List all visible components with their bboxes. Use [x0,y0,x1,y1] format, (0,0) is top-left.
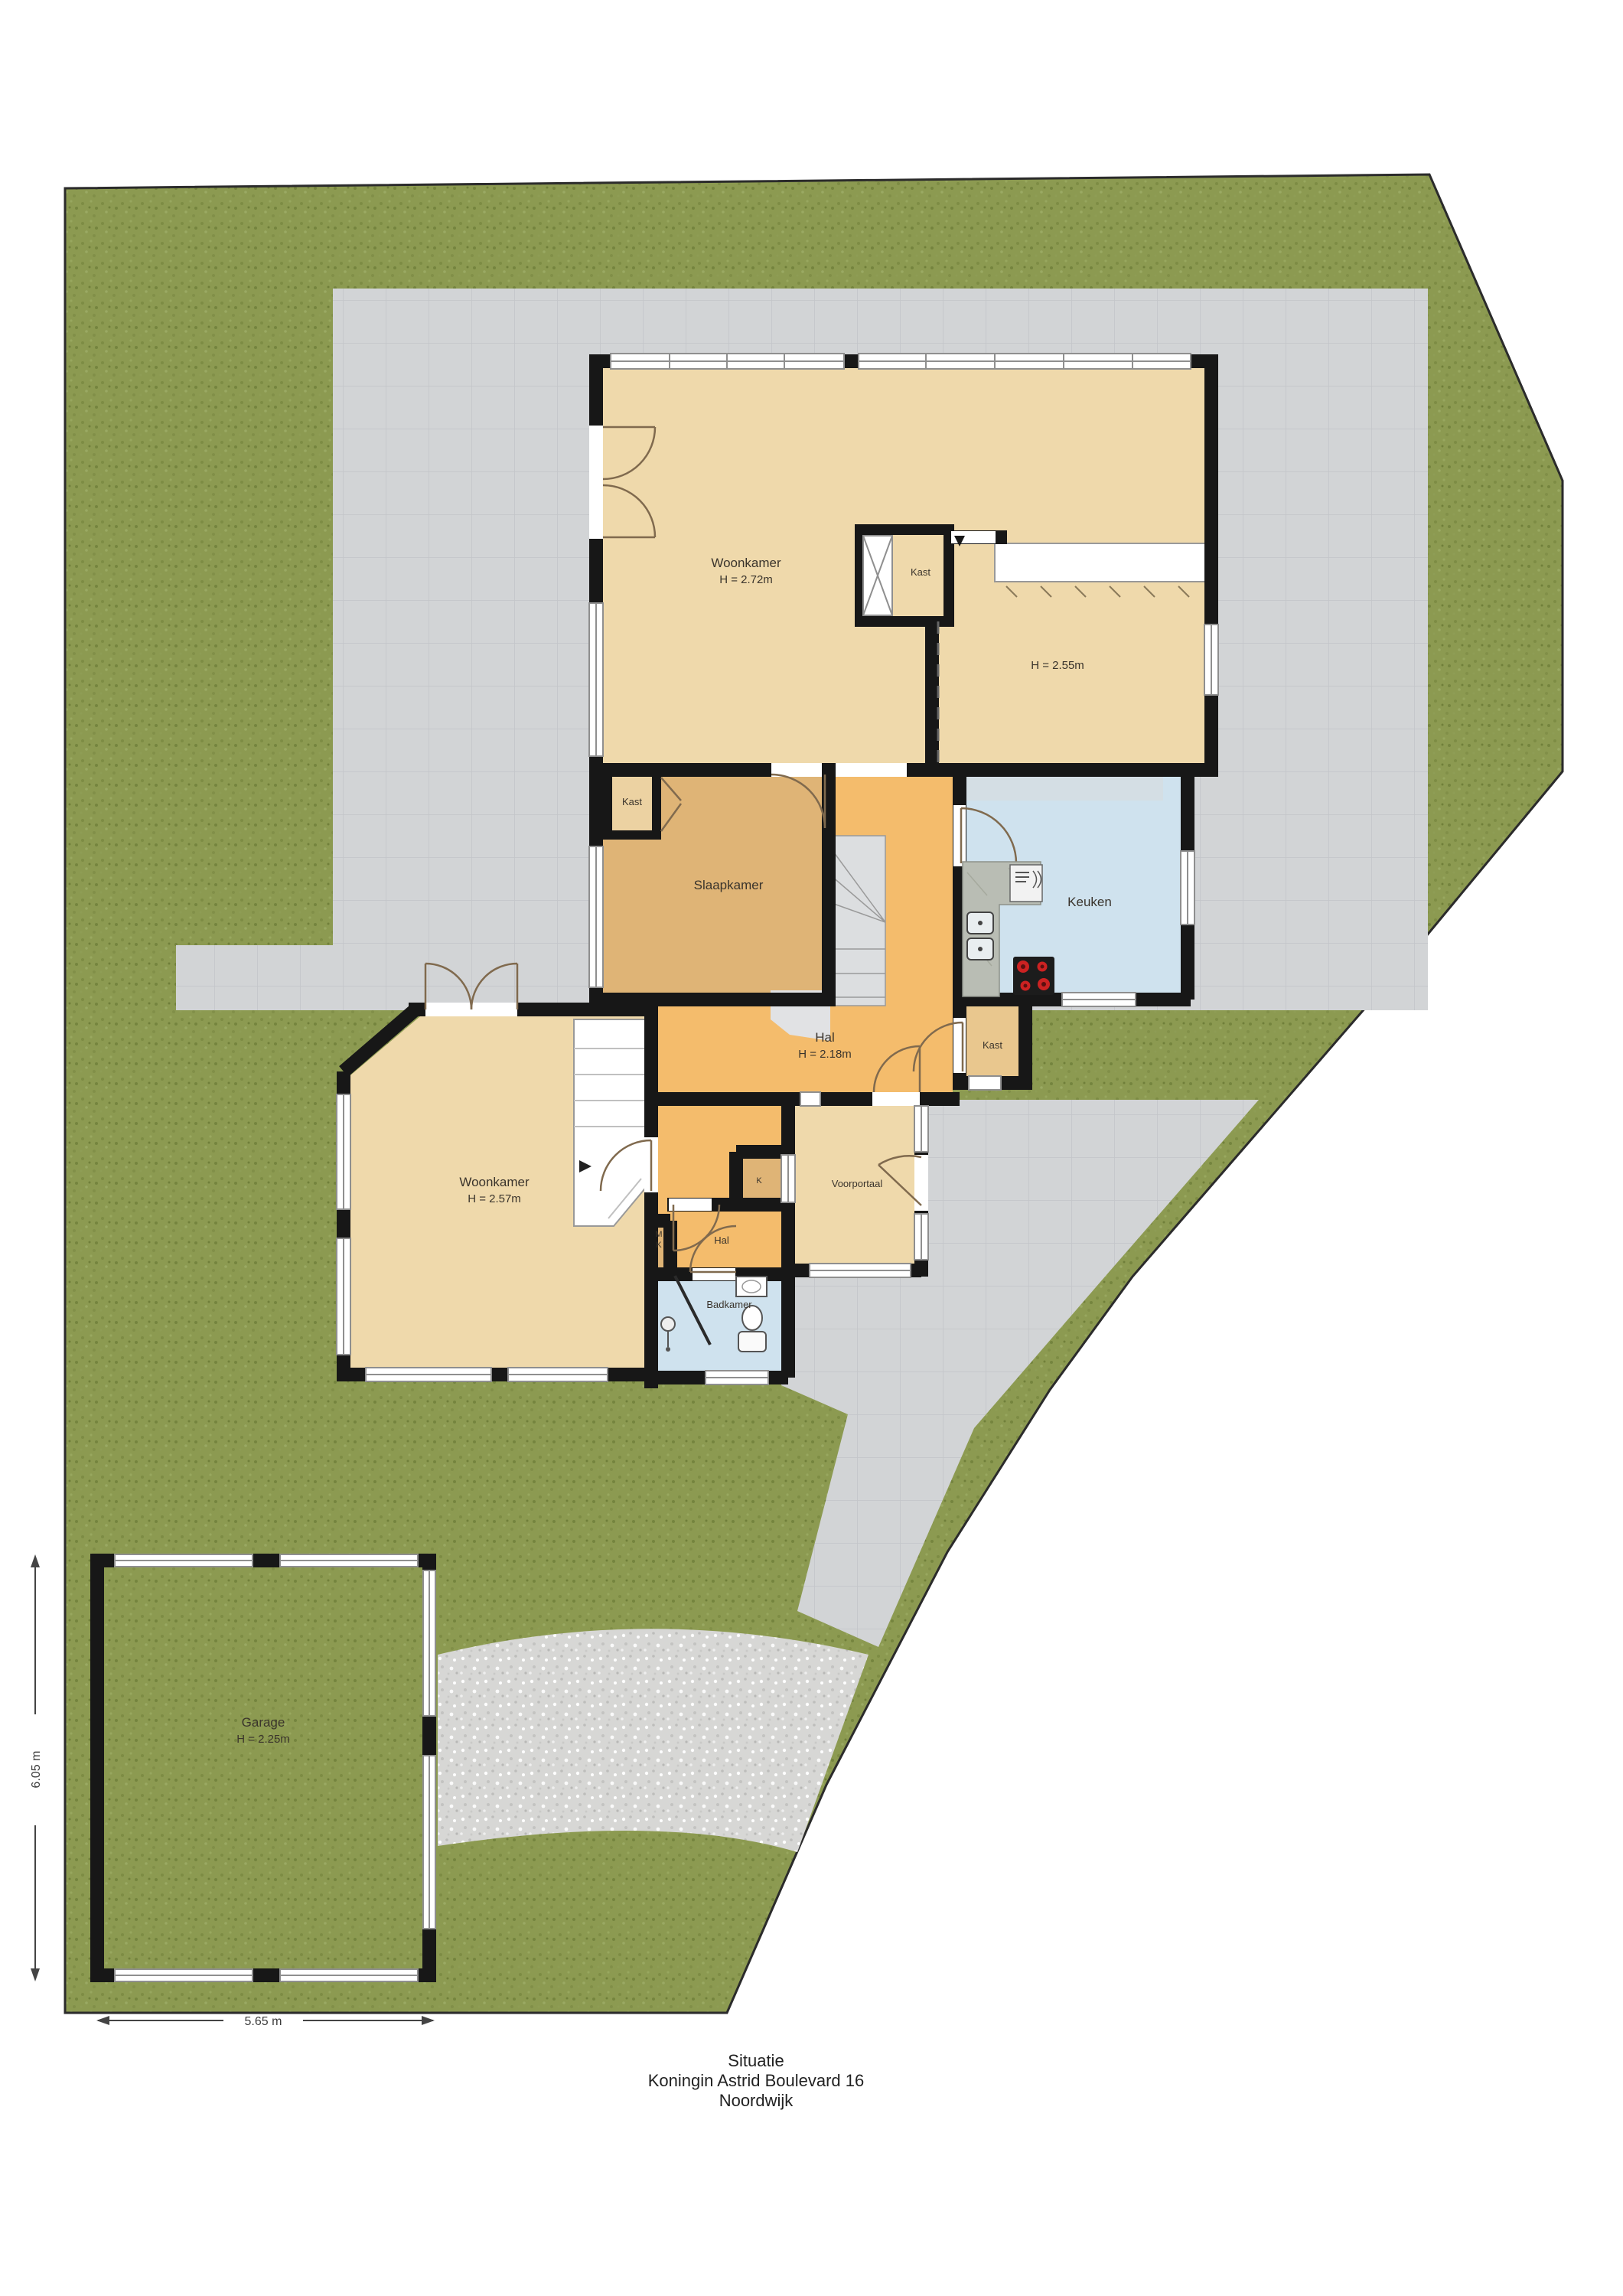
k-closet-label: K [756,1176,762,1186]
meterkast-m-label: M [655,1230,662,1239]
hal-beneden-label: Hal [714,1234,729,1246]
caption-line3: Noordwijk [719,2091,794,2110]
caption-line1: Situatie [728,2051,784,2070]
arrow-up-icon [31,1554,40,1567]
garage-height: H = 2.25m [236,1733,290,1746]
hal-height: H = 2.18m [798,1048,852,1061]
arrow-down-icon [31,1968,40,1981]
situatie-floor-plan-page: { "title": { "line1": "Situatie", "line2… [0,0,1623,2296]
woonkamer-boven-label: Woonkamer [711,556,781,570]
horizontal-dimension-label: 5.65 m [245,2015,282,2028]
vertical-dimension: 6.05 m [30,1554,43,1981]
voorportaal-label: Voorportaal [832,1178,883,1189]
woonkamer-beneden-height: H = 2.57m [468,1192,521,1205]
spiral-stairs [832,836,885,1006]
k-closet-floor [736,1152,788,1205]
cooktop-icon [1013,957,1054,995]
garage-label: Garage [242,1715,285,1730]
kast-boven-label: Kast [911,566,930,578]
keuken-upper-cabinets [966,776,1163,801]
bathroom-sink-icon [736,1277,767,1296]
dishwasher-icon [1010,865,1042,902]
woonkamer-beneden-label: Woonkamer [459,1175,530,1189]
floor-plan-svg: Woonkamer H = 2.72m Kast H = 2.55m Kast … [0,0,1623,2296]
hal-label: Hal [815,1030,835,1045]
horizontal-dimension: 5.65 m [96,2015,435,2028]
kast-hal-label: Kast [983,1039,1002,1051]
keuken-label: Keuken [1067,895,1112,909]
badkamer-label: Badkamer [706,1299,752,1310]
woonkamer-boven-height: H = 2.72m [719,573,773,586]
entry-stairs [574,1019,648,1226]
dining-counter [995,543,1207,582]
vertical-dimension-label: 6.05 m [30,1751,43,1789]
arrow-right-icon [422,2016,435,2025]
arrow-left-icon [96,2016,109,2025]
slaapkamer-label: Slaapkamer [694,878,764,892]
eetkeuken-height: H = 2.55m [1031,659,1084,672]
meterkast-k-label: K [656,1241,662,1250]
caption: Situatie Koningin Astrid Boulevard 16 No… [648,2051,865,2110]
gravel-driveway [438,1629,869,1852]
terrace-notch [176,945,333,1010]
kast-slaapkamer-label: Kast [622,796,642,807]
caption-line2: Koningin Astrid Boulevard 16 [648,2071,865,2090]
